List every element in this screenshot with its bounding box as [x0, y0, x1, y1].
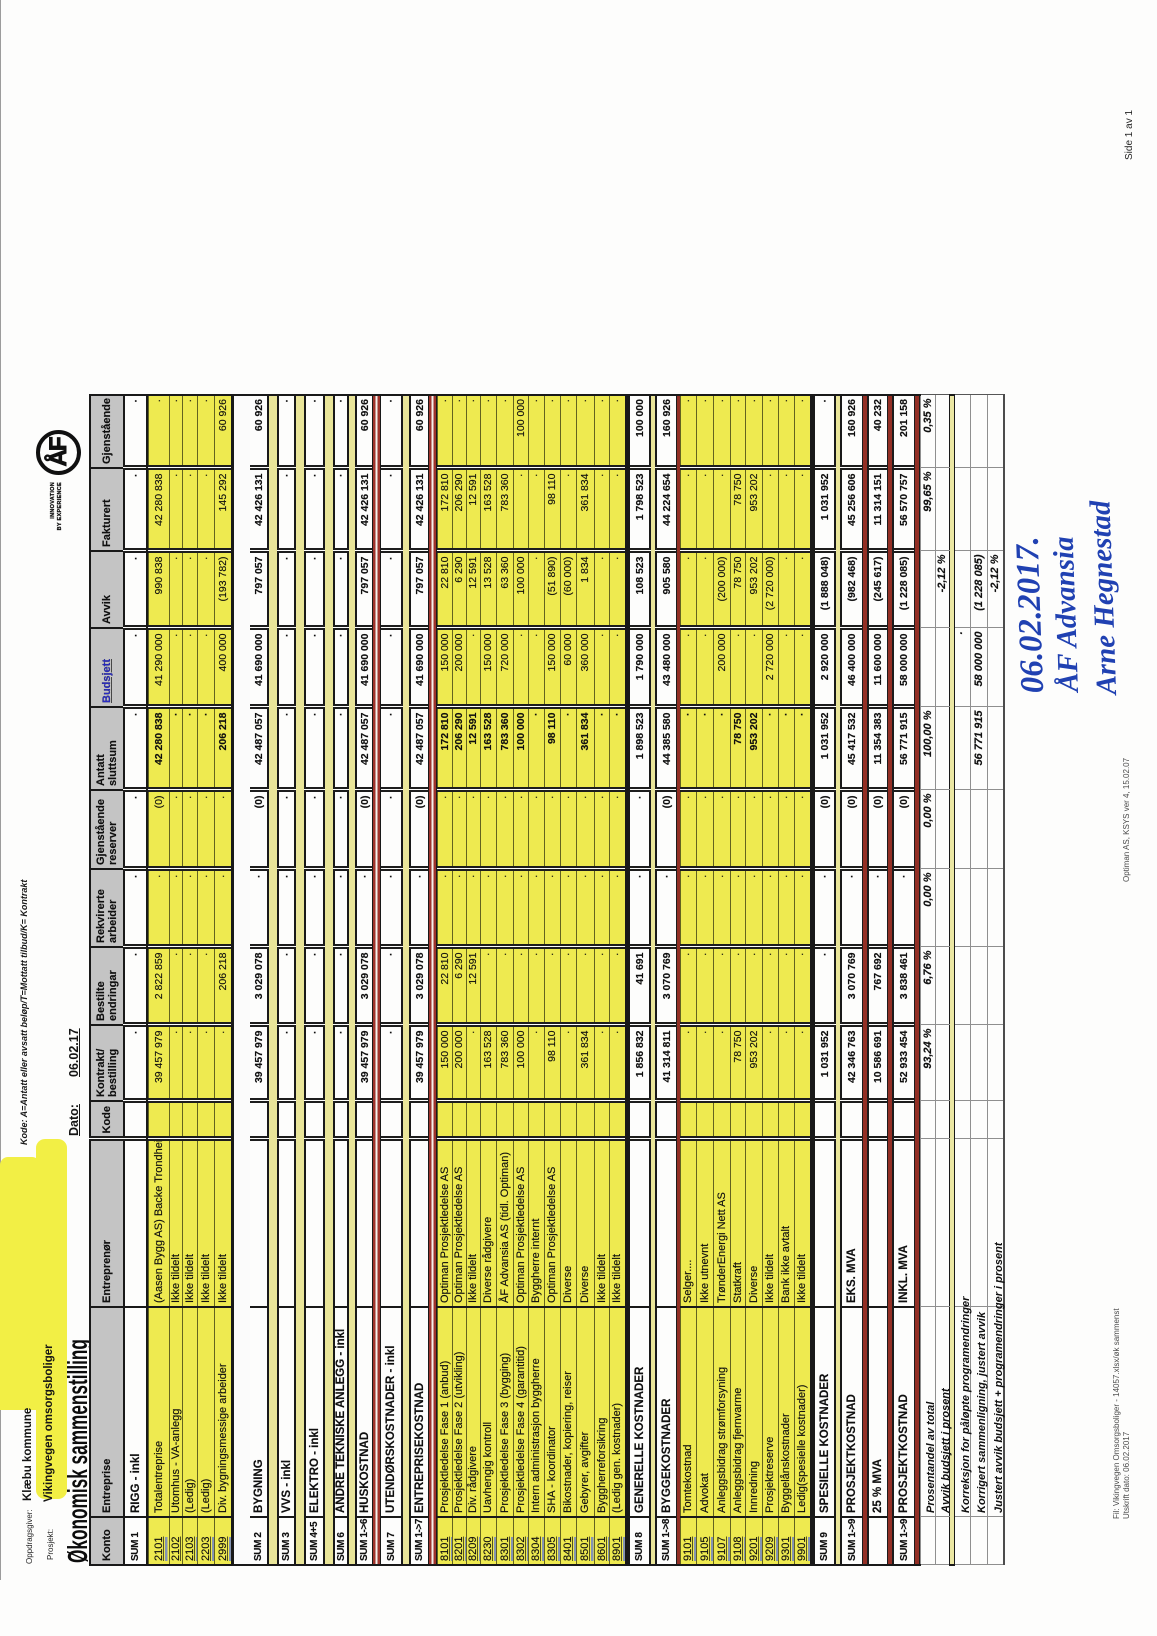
- svg-text:ÅF Advansia: ÅF Advansia: [1048, 536, 1085, 695]
- svg-text:06.02.2017.: 06.02.2017.: [1010, 536, 1051, 694]
- svg-text:Arne Hegnestad: Arne Hegnestad: [1084, 500, 1123, 696]
